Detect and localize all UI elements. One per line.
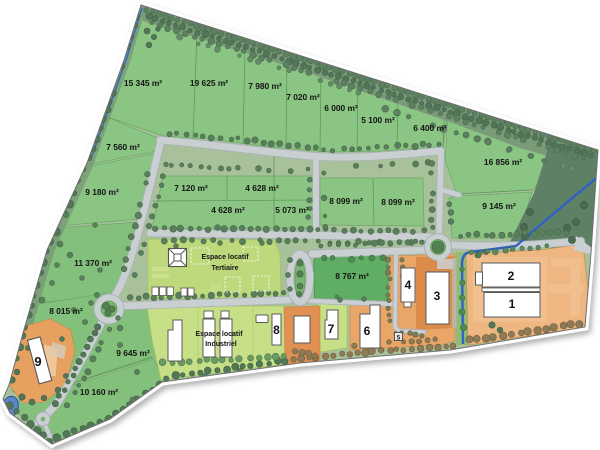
svg-text:8 015 m²: 8 015 m²: [49, 306, 83, 316]
svg-text:7 120 m²: 7 120 m²: [174, 183, 208, 193]
svg-text:19 625 m²: 19 625 m²: [190, 78, 228, 88]
svg-text:9 645 m²: 9 645 m²: [116, 348, 150, 358]
svg-text:7 560 m²: 7 560 m²: [106, 142, 140, 152]
svg-text:5 100 m²: 5 100 m²: [361, 115, 395, 125]
svg-text:6 400 m²: 6 400 m²: [413, 123, 447, 133]
svg-text:2: 2: [508, 269, 515, 283]
svg-text:Espace locatif: Espace locatif: [201, 254, 249, 261]
svg-text:6 000 m²: 6 000 m²: [324, 103, 358, 113]
svg-text:9 180 m²: 9 180 m²: [85, 187, 119, 197]
svg-text:5 073 m²: 5 073 m²: [275, 205, 309, 215]
svg-text:11 370 m²: 11 370 m²: [74, 258, 112, 268]
svg-text:4 628 m²: 4 628 m²: [245, 183, 279, 193]
svg-text:3: 3: [434, 289, 441, 303]
svg-text:9: 9: [34, 354, 41, 369]
svg-text:8: 8: [273, 323, 280, 337]
svg-text:9 145 m²: 9 145 m²: [482, 201, 516, 211]
svg-text:4 628 m²: 4 628 m²: [211, 205, 245, 215]
svg-text:10 160 m²: 10 160 m²: [80, 387, 118, 397]
svg-text:7: 7: [328, 322, 335, 336]
svg-text:6: 6: [364, 324, 371, 338]
svg-text:1: 1: [509, 297, 516, 311]
svg-text:15 345 m²: 15 345 m²: [124, 78, 162, 88]
svg-text:4: 4: [405, 278, 412, 292]
svg-text:Tertiaire: Tertiaire: [211, 265, 238, 272]
svg-text:7 980 m²: 7 980 m²: [248, 81, 282, 91]
svg-text:8 099 m²: 8 099 m²: [329, 196, 363, 206]
svg-text:8 767 m²: 8 767 m²: [335, 271, 369, 281]
svg-text:16 856 m²: 16 856 m²: [484, 157, 522, 167]
svg-text:8 099 m²: 8 099 m²: [381, 197, 415, 207]
svg-text:Espace locatif: Espace locatif: [195, 331, 243, 338]
svg-text:7 020 m²: 7 020 m²: [286, 92, 320, 102]
svg-text:Industriel: Industriel: [205, 341, 237, 348]
